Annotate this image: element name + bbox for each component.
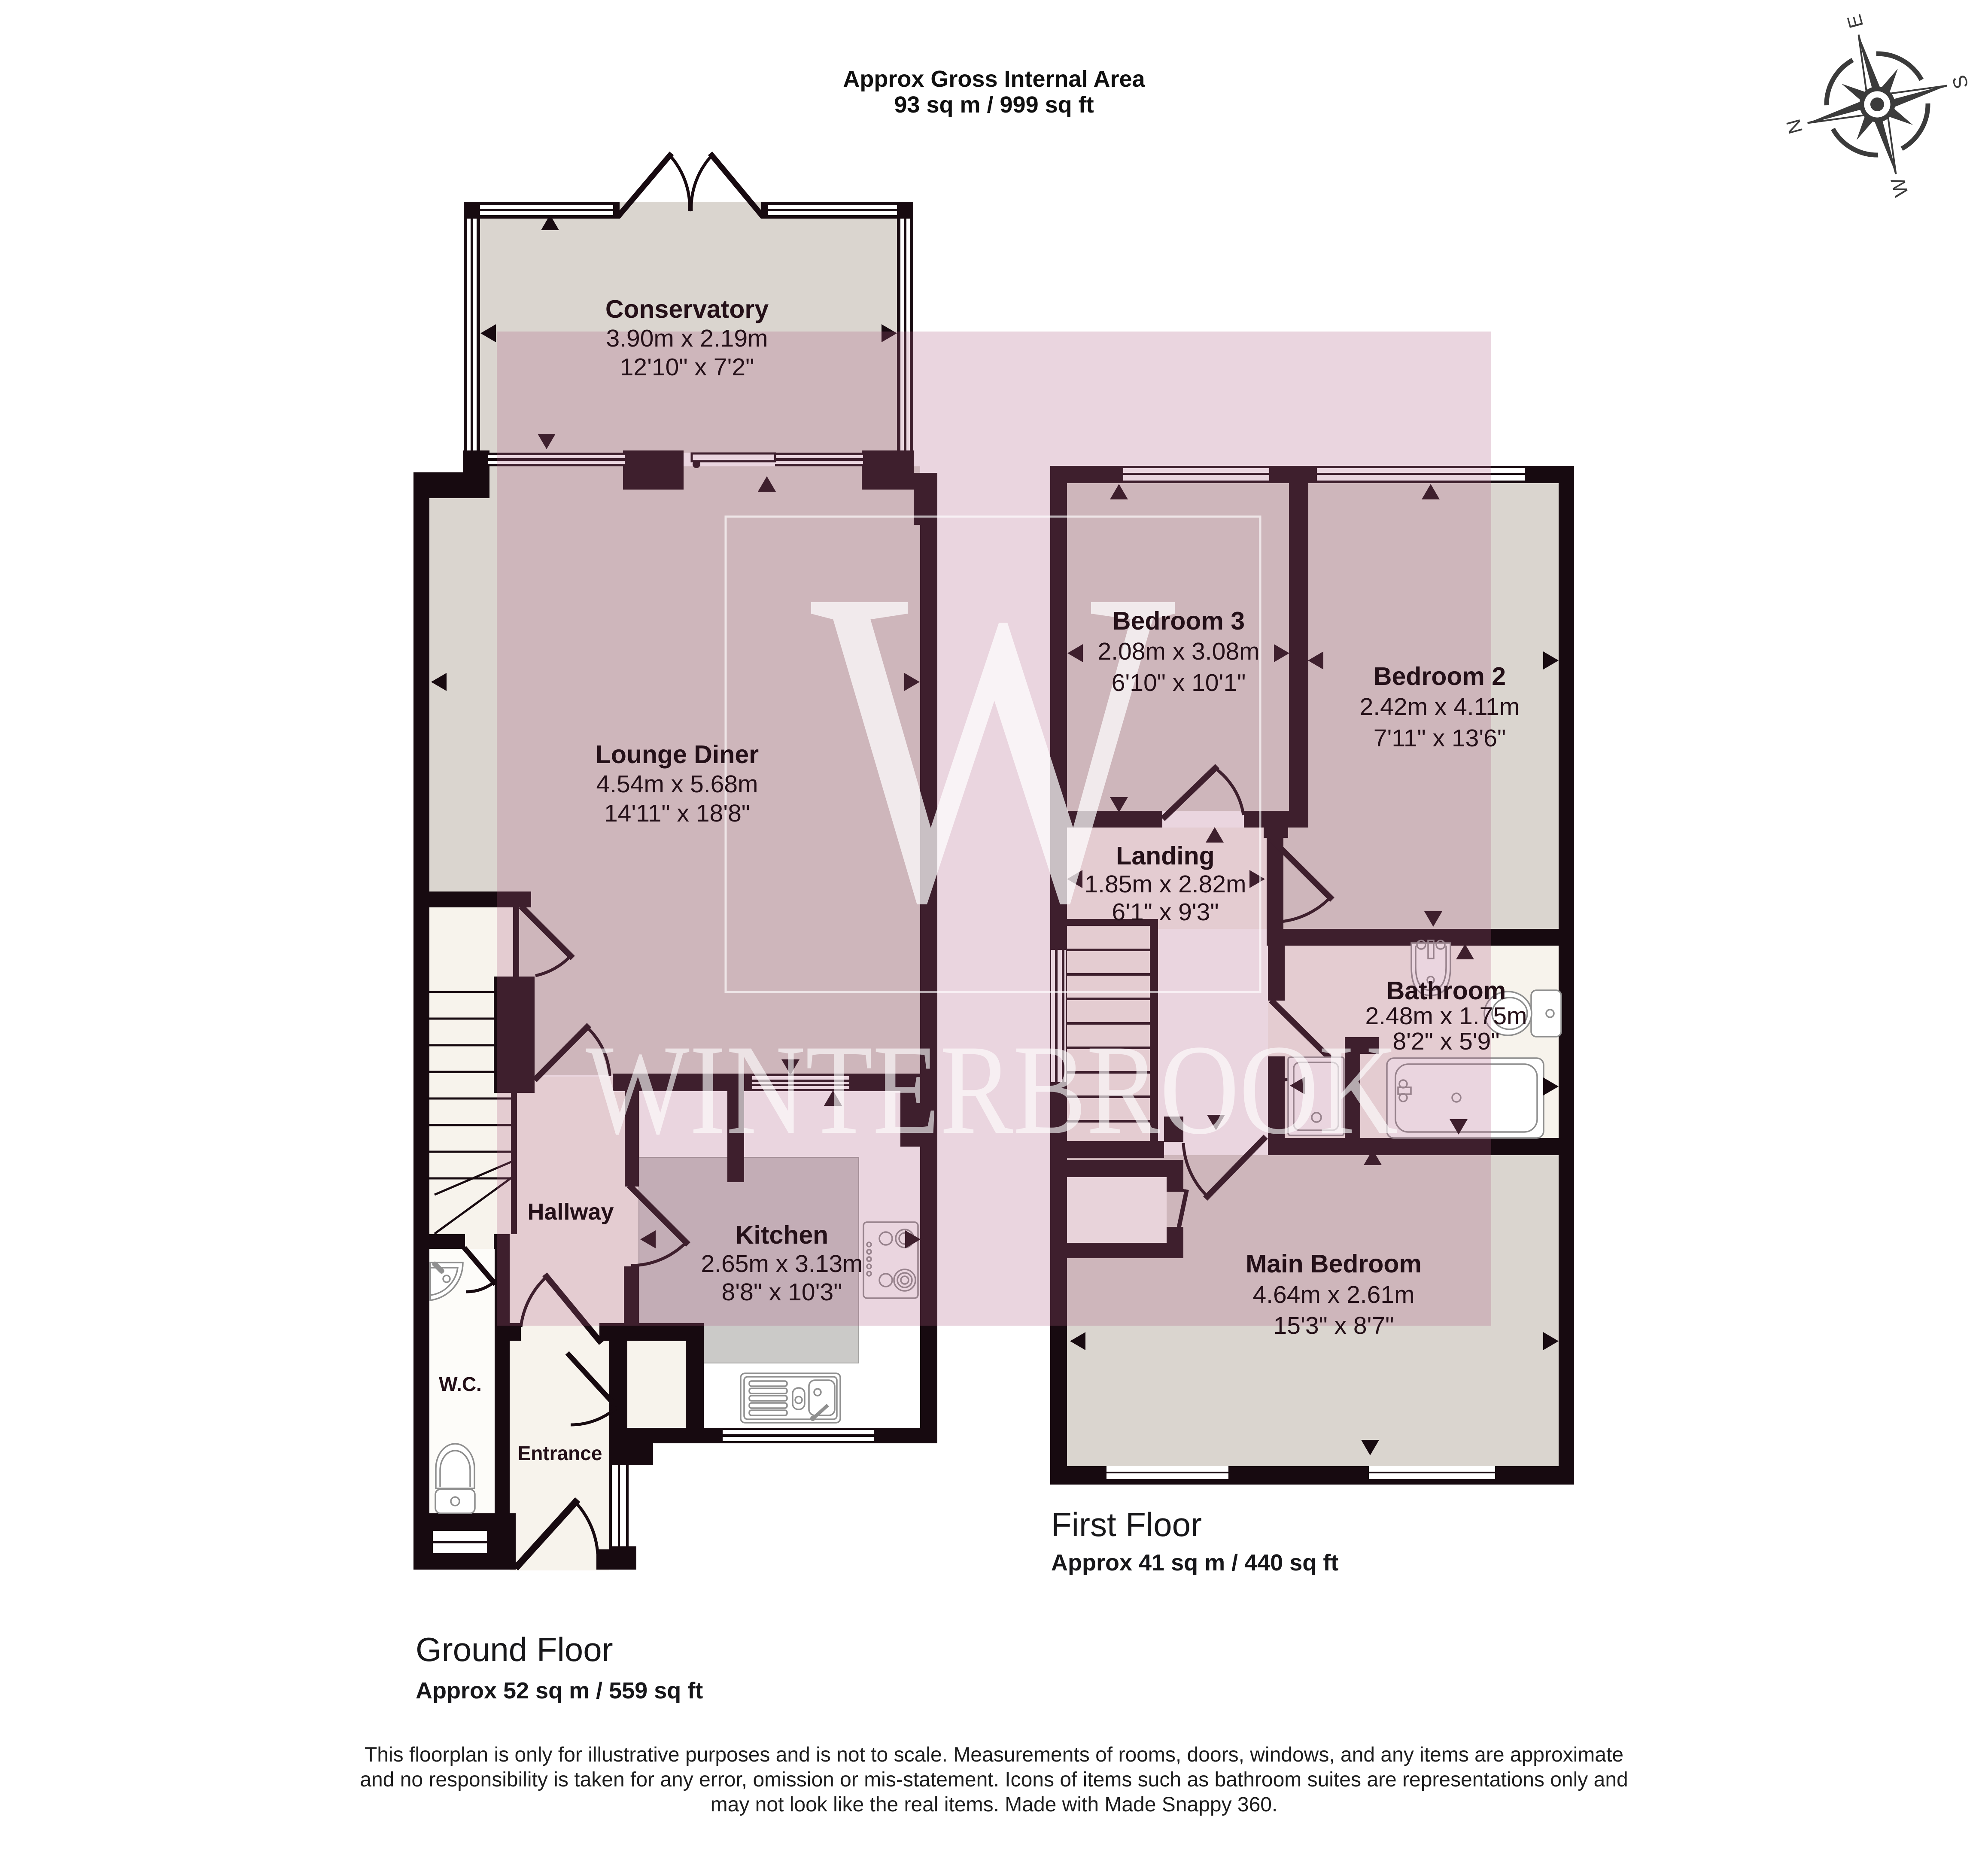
svg-text:12'10" x 7'2": 12'10" x 7'2" — [620, 353, 754, 381]
svg-text:Bedroom 2: Bedroom 2 — [1374, 662, 1506, 691]
svg-text:Approx 52 sq m / 559 sq ft: Approx 52 sq m / 559 sq ft — [416, 1678, 703, 1704]
svg-text:may not look like the real ite: may not look like the real items. Made w… — [711, 1793, 1278, 1816]
svg-text:This floorplan is only for ill: This floorplan is only for illustrative … — [365, 1743, 1623, 1766]
svg-text:2.48m x 1.75m: 2.48m x 1.75m — [1365, 1002, 1527, 1030]
svg-text:W: W — [1886, 175, 1913, 199]
svg-text:E: E — [1842, 12, 1867, 30]
svg-text:Approx Gross Internal Area: Approx Gross Internal Area — [843, 66, 1145, 92]
svg-text:2.65m x 3.13m: 2.65m x 3.13m — [701, 1250, 863, 1278]
svg-text:15'3" x 8'7": 15'3" x 8'7" — [1274, 1312, 1394, 1339]
svg-text:4.64m x 2.61m: 4.64m x 2.61m — [1252, 1281, 1414, 1308]
svg-text:2.42m x 4.11m: 2.42m x 4.11m — [1360, 693, 1520, 721]
svg-text:Ground Floor: Ground Floor — [416, 1631, 613, 1668]
svg-text:WINTERBROOK: WINTERBROOK — [586, 1018, 1398, 1161]
svg-text:93 sq m / 999 sq ft: 93 sq m / 999 sq ft — [894, 92, 1094, 118]
svg-text:7'11" x 13'6": 7'11" x 13'6" — [1374, 724, 1506, 752]
svg-text:8'2" x 5'9": 8'2" x 5'9" — [1392, 1028, 1499, 1055]
svg-text:Approx 41 sq m / 440 sq ft: Approx 41 sq m / 440 sq ft — [1051, 1550, 1338, 1576]
svg-text:Bathroom: Bathroom — [1386, 977, 1506, 1005]
svg-text:Landing: Landing — [1116, 842, 1214, 870]
svg-text:Hallway: Hallway — [527, 1199, 614, 1225]
svg-text:Kitchen: Kitchen — [736, 1221, 828, 1249]
svg-text:6'10" x 10'1": 6'10" x 10'1" — [1112, 669, 1246, 697]
svg-text:Entrance: Entrance — [518, 1442, 602, 1464]
svg-text:Lounge Diner: Lounge Diner — [596, 740, 759, 769]
svg-text:Bedroom 3: Bedroom 3 — [1113, 607, 1245, 635]
svg-text:2.08m x 3.08m: 2.08m x 3.08m — [1097, 638, 1259, 665]
svg-text:4.54m x 5.68m: 4.54m x 5.68m — [596, 770, 758, 798]
svg-text:W.C.: W.C. — [439, 1373, 482, 1395]
svg-text:8'8" x 10'3": 8'8" x 10'3" — [722, 1278, 842, 1306]
svg-text:14'11" x 18'8": 14'11" x 18'8" — [604, 800, 750, 827]
svg-text:and no responsibility is taken: and no responsibility is taken for any e… — [360, 1768, 1628, 1791]
svg-text:N: N — [1781, 117, 1807, 137]
svg-text:Conservatory: Conservatory — [605, 295, 769, 323]
svg-text:S: S — [1948, 73, 1973, 91]
svg-text:6'1" x 9'3": 6'1" x 9'3" — [1112, 898, 1219, 926]
svg-text:1.85m x 2.82m: 1.85m x 2.82m — [1084, 870, 1246, 898]
svg-text:3.90m x 2.19m: 3.90m x 2.19m — [606, 325, 768, 352]
svg-text:Main Bedroom: Main Bedroom — [1246, 1250, 1422, 1278]
svg-text:First Floor: First Floor — [1051, 1506, 1202, 1543]
